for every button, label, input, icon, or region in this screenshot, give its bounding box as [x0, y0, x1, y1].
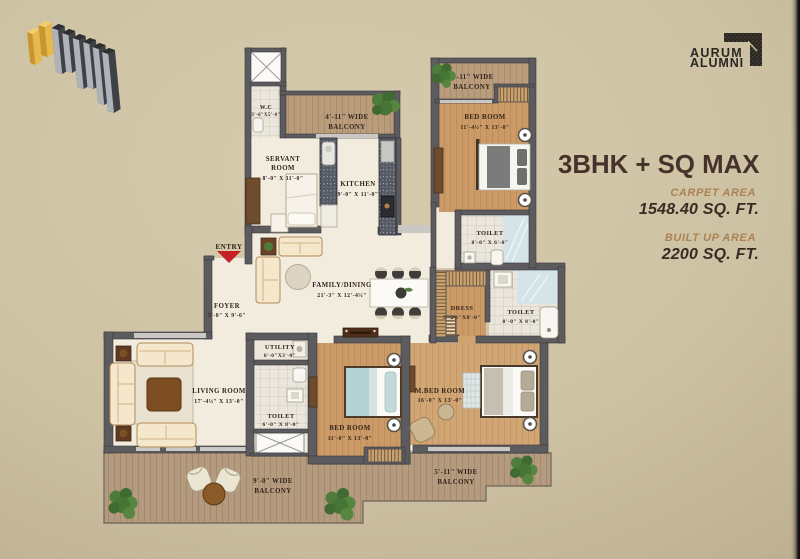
svg-text:ENTRY: ENTRY	[215, 243, 243, 251]
svg-text:FAMILY/DINING: FAMILY/DINING	[312, 282, 372, 289]
svg-text:FOYER: FOYER	[214, 303, 240, 310]
svg-text:TOILET: TOILET	[267, 413, 294, 420]
svg-text:4'-11" WIDE: 4'-11" WIDE	[450, 74, 493, 81]
svg-text:TOILET: TOILET	[507, 309, 534, 316]
svg-text:BED ROOM: BED ROOM	[329, 425, 370, 432]
svg-text:8'-0" X 11'-0": 8'-0" X 11'-0"	[262, 176, 303, 182]
svg-text:CARPET AREA: CARPET AREA	[670, 187, 756, 199]
svg-text:17'-4½" X 13'-0": 17'-4½" X 13'-0"	[194, 398, 244, 405]
svg-text:W.C: W.C	[260, 105, 272, 111]
svg-text:5'-0" X 9'-6": 5'-0" X 9'-6"	[208, 313, 246, 319]
svg-text:2200 SQ. FT.: 2200 SQ. FT.	[661, 246, 759, 263]
svg-text:M.BED ROOM: M.BED ROOM	[415, 388, 465, 395]
svg-text:9'-0" X 11'-0": 9'-0" X 11'-0"	[337, 192, 378, 198]
svg-text:BALCONY: BALCONY	[437, 479, 474, 486]
svg-text:4'-11" WIDE: 4'-11" WIDE	[325, 114, 368, 121]
svg-text:3'-6"X5'-0": 3'-6"X5'-0"	[251, 113, 280, 118]
svg-text:BUILT UP AREA: BUILT UP AREA	[665, 232, 756, 244]
svg-text:16'-0" X 13'-0": 16'-0" X 13'-0"	[418, 398, 463, 404]
svg-text:TOILET: TOILET	[476, 230, 503, 237]
svg-text:BALCONY: BALCONY	[254, 488, 291, 495]
svg-text:DRESS: DRESS	[451, 305, 474, 312]
svg-text:11'-4½" X 13'-0": 11'-4½" X 13'-0"	[460, 124, 509, 131]
svg-text:1548.40 SQ. FT.: 1548.40 SQ. FT.	[639, 201, 759, 218]
svg-text:6'-0"X3'-0": 6'-0"X3'-0"	[264, 353, 296, 359]
svg-text:SERVANT: SERVANT	[266, 156, 301, 163]
svg-text:6'-0" X 8'-0": 6'-0" X 8'-0"	[263, 422, 300, 428]
svg-text:21'-3" X 12'-4½": 21'-3" X 12'-4½"	[317, 292, 367, 299]
svg-text:BALCONY: BALCONY	[453, 84, 490, 91]
svg-text:LIVING ROOM: LIVING ROOM	[192, 388, 246, 395]
svg-text:BALCONY: BALCONY	[328, 124, 365, 131]
svg-text:9'-0" WIDE: 9'-0" WIDE	[253, 478, 293, 485]
svg-text:KITCHEN: KITCHEN	[340, 181, 375, 188]
svg-text:11'-0" X 13'-0": 11'-0" X 13'-0"	[328, 436, 372, 442]
svg-text:BED ROOM: BED ROOM	[464, 114, 505, 121]
svg-text:8'-0" X 6'-0": 8'-0" X 6'-0"	[472, 240, 509, 246]
svg-text:ALUMNI: ALUMNI	[690, 56, 744, 70]
svg-text:8'-0" X 8'-0": 8'-0" X 8'-0"	[503, 319, 540, 325]
svg-text:UTILITY: UTILITY	[265, 344, 295, 351]
svg-text:3BHK + SQ MAX: 3BHK + SQ MAX	[558, 151, 759, 179]
svg-text:5'-2½"X8'-0": 5'-2½"X8'-0"	[443, 314, 481, 321]
svg-text:5'-11" WIDE: 5'-11" WIDE	[434, 469, 477, 476]
svg-text:ROOM: ROOM	[271, 165, 295, 172]
